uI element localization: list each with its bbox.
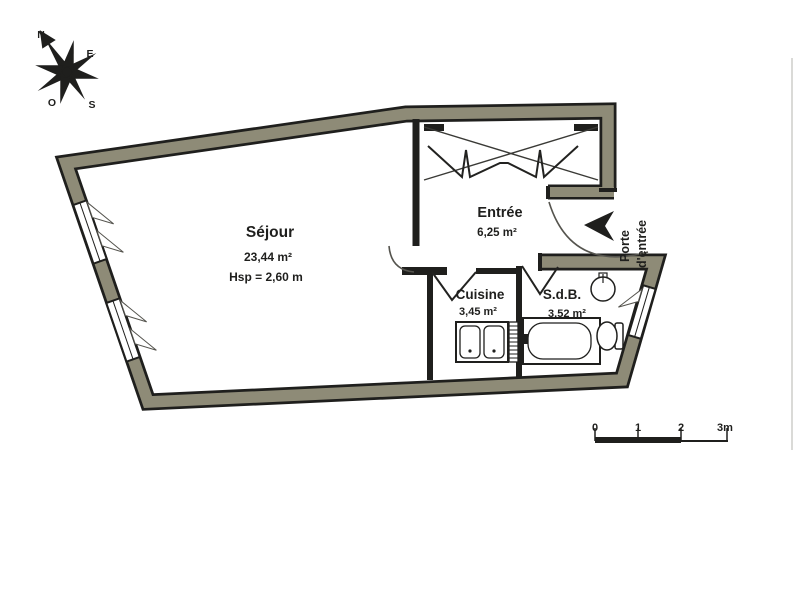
toilet-symbol [597, 322, 623, 350]
compass-letter-s: S [88, 99, 95, 111]
washbasin-symbol [591, 273, 615, 301]
room-area-cuisine: 3,45 m² [459, 306, 497, 318]
room-height-sejour: Hsp = 2,60 m [229, 270, 303, 284]
sejour-window-1 [73, 195, 123, 264]
compass-star [10, 11, 114, 119]
floor-plan-page: N E O S Séjour 23,44 m² Hsp = 2,60 m Ent… [0, 0, 800, 600]
scale-tick-3: 3m [717, 422, 733, 434]
compass-rose: N E O S [10, 11, 114, 119]
kitchen-sink-symbol [456, 322, 508, 362]
sejour-window-2 [106, 293, 156, 362]
room-label-sdb: S.d.B. [543, 287, 581, 302]
compass-letter-o: O [48, 97, 56, 109]
entrance-label-line2: d'entrée [635, 220, 649, 268]
room-label-cuisine: Cuisine [456, 287, 505, 302]
scale-tick-2: 2 [678, 422, 684, 434]
compass-letter-n: N [37, 29, 45, 41]
room-label-entree: Entrée [477, 205, 522, 221]
closet-symbol [424, 124, 598, 180]
scale-bar: 0 1 2 3m [592, 422, 733, 443]
entrance-arrow-icon [584, 211, 614, 241]
floor-plan-canvas: N E O S Séjour 23,44 m² Hsp = 2,60 m Ent… [0, 0, 800, 600]
scale-tick-0: 0 [592, 422, 598, 434]
scale-tick-1: 1 [635, 422, 641, 434]
scan-artifact-line [791, 58, 793, 450]
entrance-label-line1: Porte [618, 230, 632, 262]
room-label-sejour: Séjour [246, 224, 294, 241]
compass-letter-e: E [86, 48, 93, 60]
room-area-sejour: 23,44 m² [244, 250, 292, 264]
kitchen-counter-hatch [509, 322, 518, 362]
room-area-entree: 6,25 m² [477, 227, 517, 239]
room-area-sdb: 3,52 m² [548, 308, 586, 320]
room-labels: Séjour 23,44 m² Hsp = 2,60 m Entrée 6,25… [229, 205, 586, 320]
bathtub-symbol [523, 318, 600, 364]
